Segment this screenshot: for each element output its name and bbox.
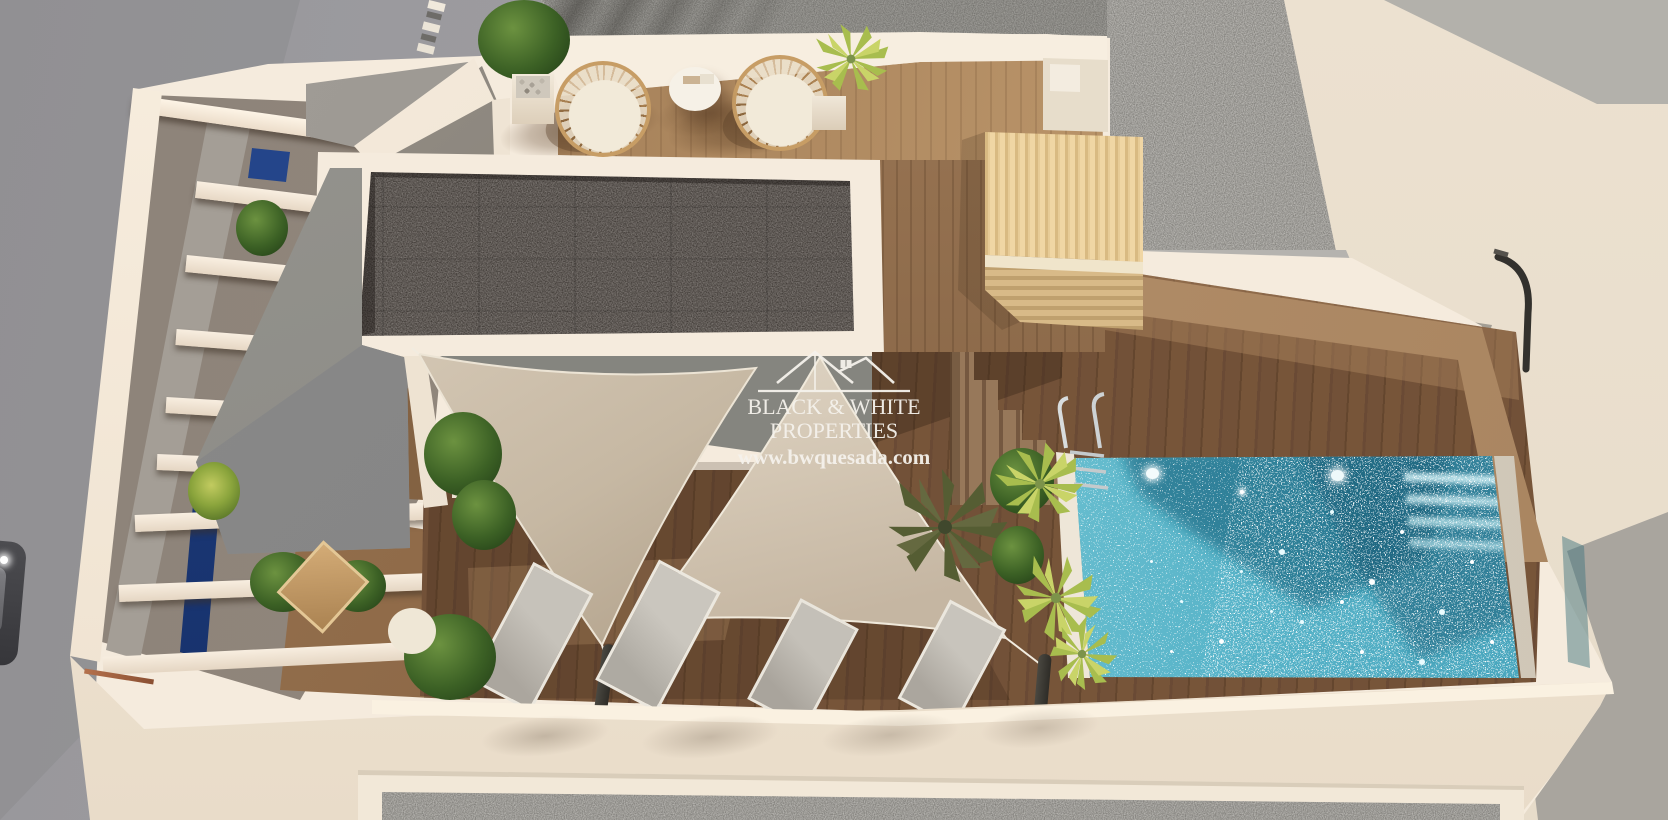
svg-text:www.bwquesada.com: www.bwquesada.com — [738, 445, 931, 469]
svg-text:PROPERTIES: PROPERTIES — [770, 418, 898, 443]
svg-text:BLACK & WHITE: BLACK & WHITE — [747, 394, 920, 419]
